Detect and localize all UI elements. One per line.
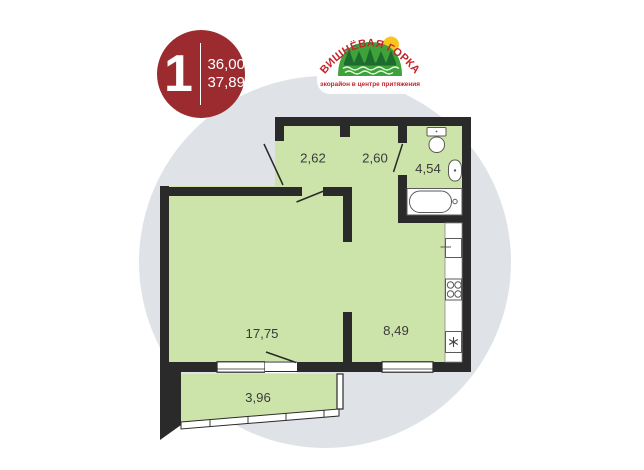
wall-right [462,117,471,372]
wall-hall-stub [340,126,350,137]
toilet-button [436,131,438,133]
room-label-balcony: 3,96 [245,390,271,405]
living-room-window [217,362,265,372]
balcony-side-window [337,374,343,409]
wall-living-top [160,187,302,196]
room-label-bathroom: 4,54 [415,161,441,176]
room-label-hallway: 2,62 [300,151,326,166]
bathtub-drain [453,199,457,203]
wall-top [275,117,471,126]
room-label-living-room: 17,75 [245,326,278,341]
toilet-icon [429,137,445,153]
floorplan-canvas: 1 36,00 37,89 [0,0,644,470]
wall-bath-jamb [398,126,407,143]
wall-left [160,186,169,372]
floor-plan: 2,62 2,60 4,54 17,75 8,49 3,96 [0,0,644,470]
room-label-kitchen: 8,49 [383,323,409,338]
wall-kitchen-separator-lower [343,312,352,372]
wall-balcony-left [160,372,181,440]
room-label-corridor: 2,60 [362,151,388,166]
kitchen-window [382,362,433,372]
kitchen-sink-icon [446,239,462,258]
wall-entrance-jamb [275,117,284,141]
washbasin-drain [454,169,456,171]
wall-bath-bottom [398,215,462,223]
wall-kitchen-separator-upper [343,187,352,242]
